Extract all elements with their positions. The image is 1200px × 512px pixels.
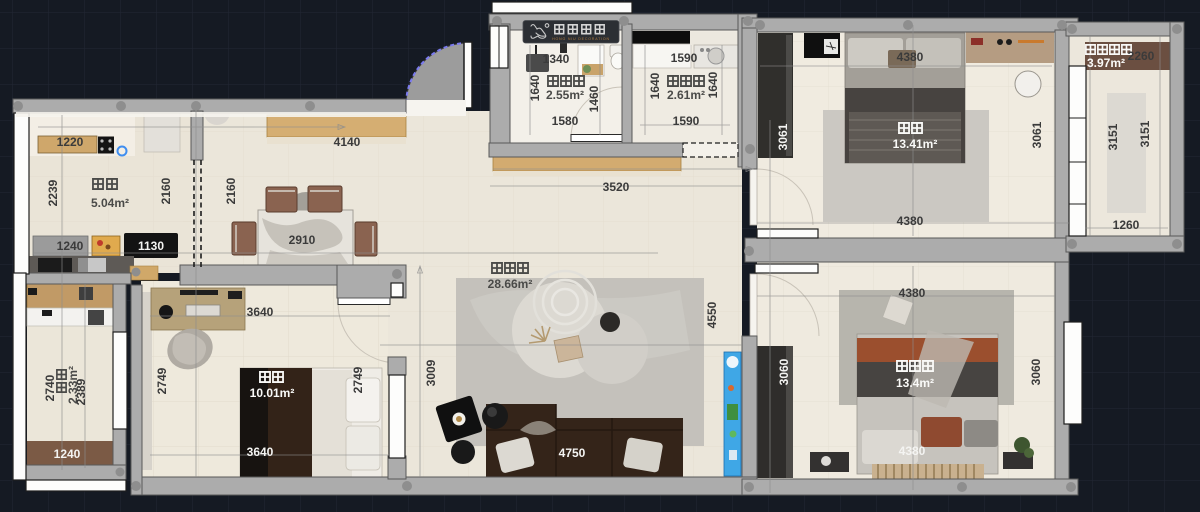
svg-text:3151: 3151 [1138,120,1152,147]
svg-text:3520: 3520 [603,180,630,194]
svg-text:3060: 3060 [1029,358,1043,385]
svg-text:10.01m²: 10.01m² [250,386,295,400]
svg-text:3060: 3060 [777,358,791,385]
svg-text:4140: 4140 [334,135,361,149]
svg-text:2.55m²: 2.55m² [546,88,584,102]
svg-text:1240: 1240 [57,239,84,253]
svg-text:13.41m²: 13.41m² [893,137,938,151]
svg-text:4380: 4380 [899,444,926,458]
svg-text:13.4m²: 13.4m² [896,376,934,390]
svg-text:4380: 4380 [899,286,926,300]
svg-text:3061: 3061 [1030,121,1044,148]
svg-text:2749: 2749 [155,367,169,394]
svg-text:3640: 3640 [247,445,274,459]
svg-text:2910: 2910 [289,233,316,247]
svg-text:3640: 3640 [247,305,274,319]
svg-text:1640: 1640 [706,71,720,98]
svg-text:3009: 3009 [424,359,438,386]
svg-text:1340: 1340 [543,52,570,66]
svg-text:2749: 2749 [351,366,365,393]
svg-text:1590: 1590 [671,51,698,65]
svg-text:2260: 2260 [1128,49,1155,63]
svg-text:2160: 2160 [224,177,238,204]
svg-text:4380: 4380 [897,50,924,64]
svg-text:1580: 1580 [552,114,579,128]
svg-text:2740: 2740 [43,374,57,401]
svg-text:1640: 1640 [648,72,662,99]
svg-text:3151: 3151 [1106,123,1120,150]
svg-text:HONG NIU DECORATION: HONG NIU DECORATION [552,37,610,41]
svg-text:3.97m²: 3.97m² [1087,56,1125,70]
svg-text:1590: 1590 [673,114,700,128]
svg-text:4380: 4380 [897,214,924,228]
svg-text:5.04m²: 5.04m² [91,196,129,210]
svg-text:2389: 2389 [74,378,88,405]
svg-text:1130: 1130 [138,239,164,253]
svg-text:1240: 1240 [54,447,81,461]
svg-text:3061: 3061 [776,123,790,150]
svg-text:2160: 2160 [159,177,173,204]
svg-text:1220: 1220 [57,135,84,149]
svg-text:4750: 4750 [559,446,586,460]
svg-text:1260: 1260 [1113,218,1140,232]
svg-text:2239: 2239 [46,179,60,206]
svg-text:1460: 1460 [587,85,601,112]
svg-text:28.66m²: 28.66m² [488,277,533,291]
svg-text:4550: 4550 [705,301,719,328]
svg-text:1640: 1640 [528,74,542,101]
svg-text:2.61m²: 2.61m² [667,88,705,102]
